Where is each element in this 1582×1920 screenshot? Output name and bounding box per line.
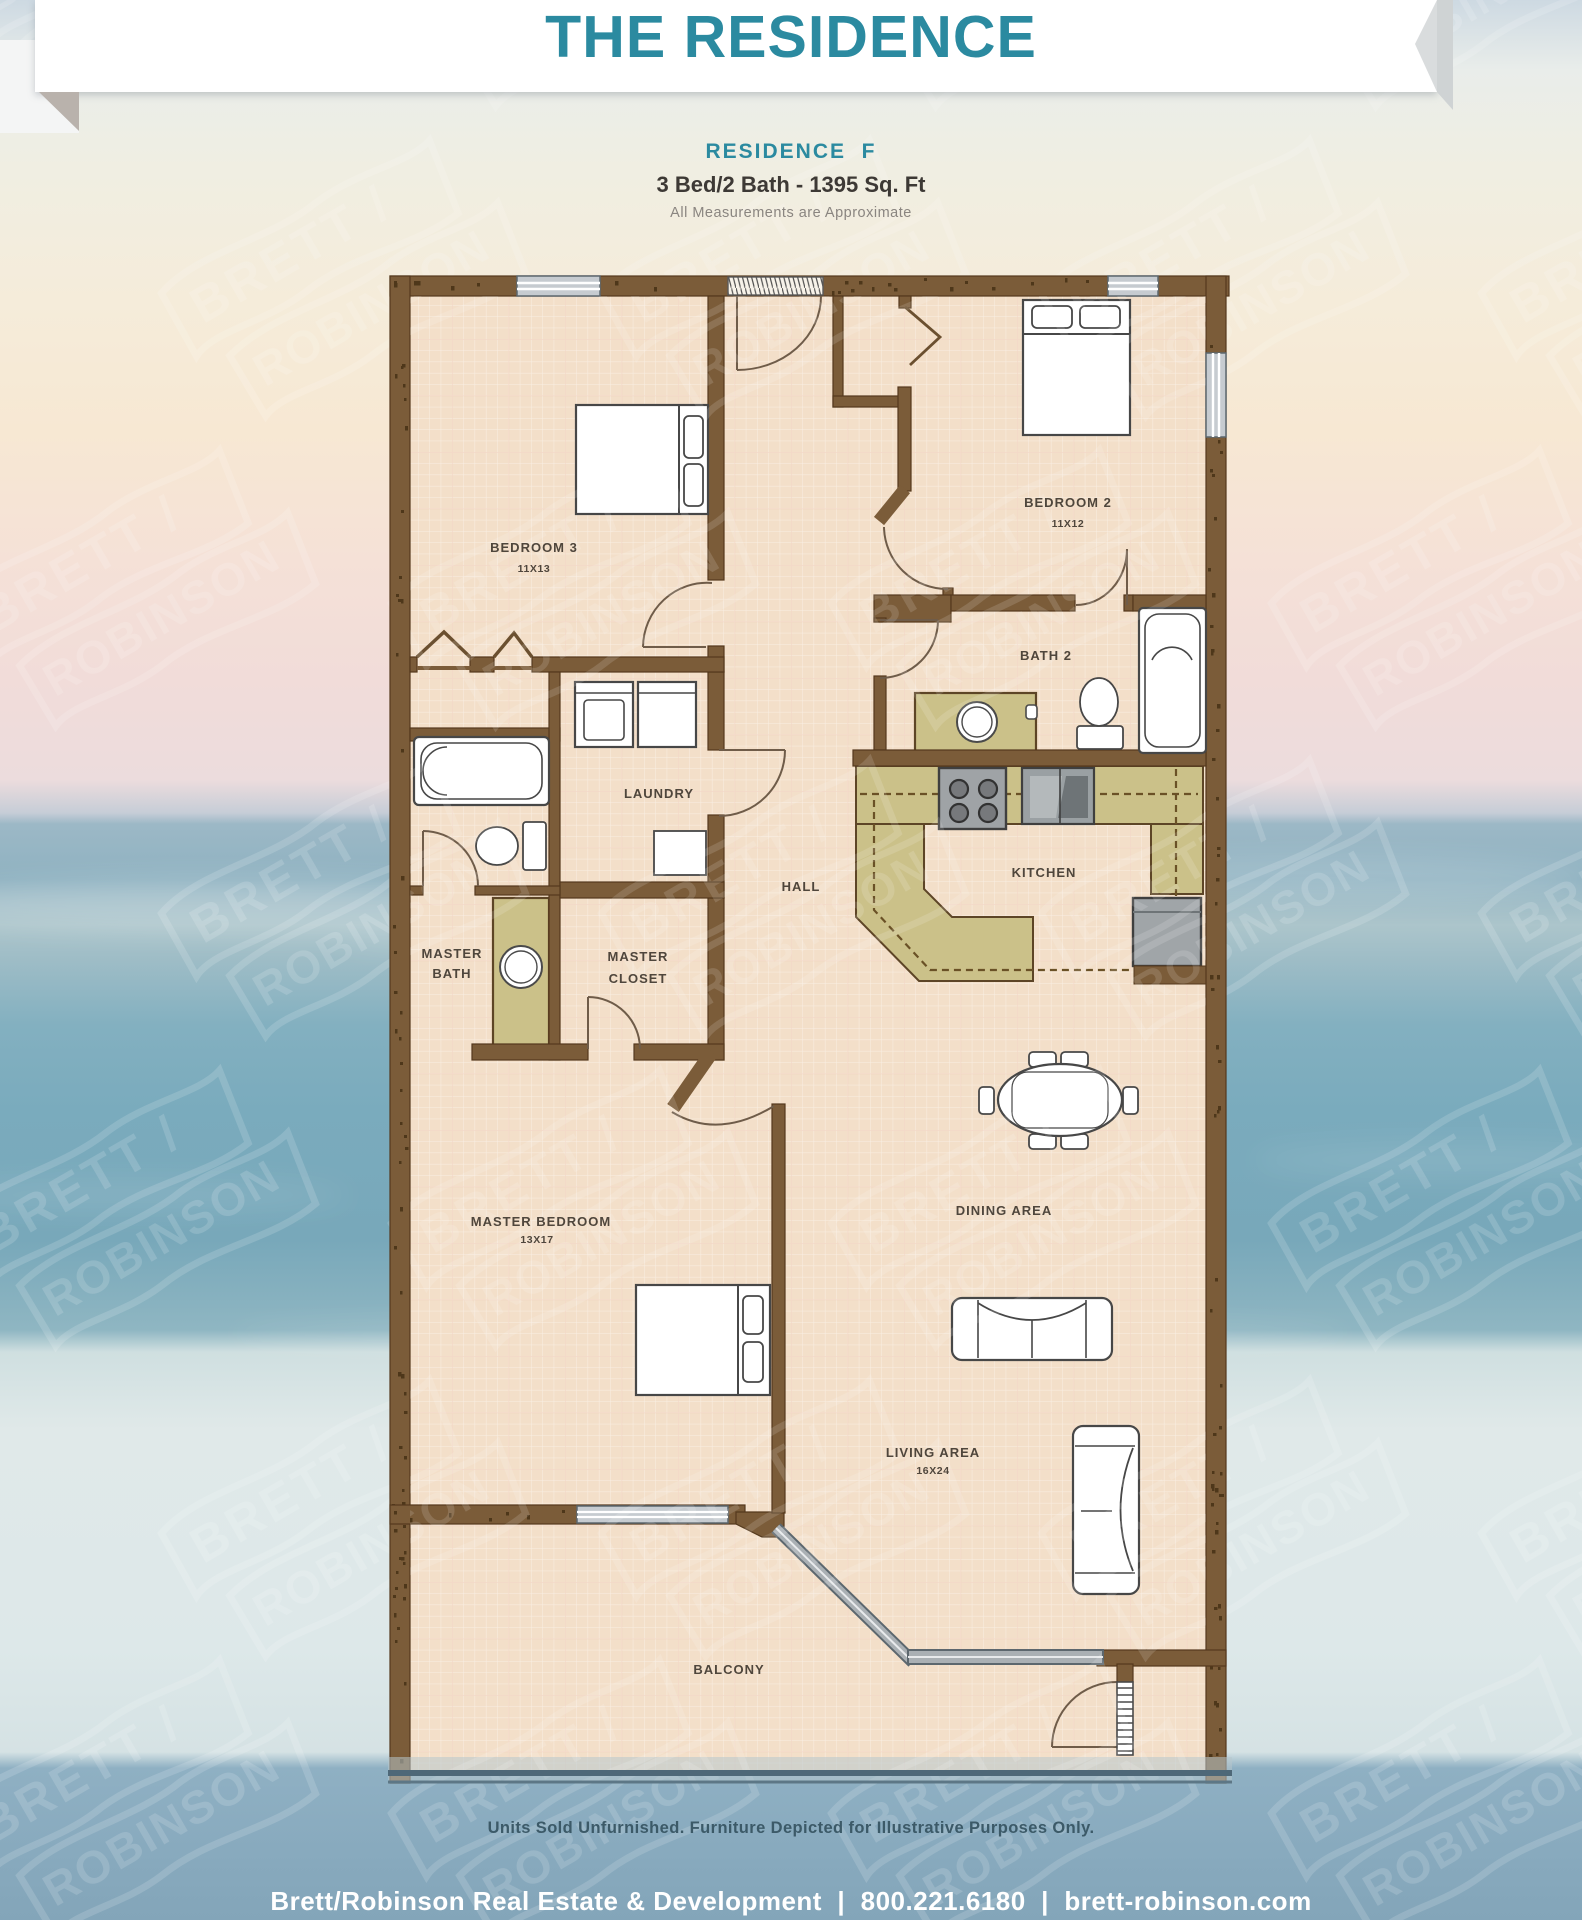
svg-text:13X17: 13X17: [520, 1234, 553, 1246]
svg-text:MASTER: MASTER: [422, 946, 483, 961]
svg-text:MASTER: MASTER: [608, 949, 669, 964]
svg-text:DINING AREA: DINING AREA: [956, 1203, 1052, 1218]
svg-text:11X13: 11X13: [518, 563, 551, 575]
svg-text:BALCONY: BALCONY: [693, 1662, 764, 1677]
svg-text:BATH: BATH: [432, 966, 471, 981]
svg-text:BEDROOM 3: BEDROOM 3: [490, 540, 578, 555]
svg-text:BEDROOM 2: BEDROOM 2: [1024, 495, 1112, 510]
svg-text:16X24: 16X24: [916, 1465, 949, 1477]
svg-text:LIVING AREA: LIVING AREA: [886, 1445, 980, 1460]
svg-text:HALL: HALL: [782, 879, 821, 894]
svg-text:BATH 2: BATH 2: [1020, 648, 1072, 663]
svg-text:CLOSET: CLOSET: [609, 971, 668, 986]
svg-text:11X12: 11X12: [1052, 518, 1085, 530]
svg-text:MASTER BEDROOM: MASTER BEDROOM: [471, 1214, 611, 1229]
svg-text:LAUNDRY: LAUNDRY: [624, 786, 694, 801]
svg-text:KITCHEN: KITCHEN: [1012, 865, 1077, 880]
